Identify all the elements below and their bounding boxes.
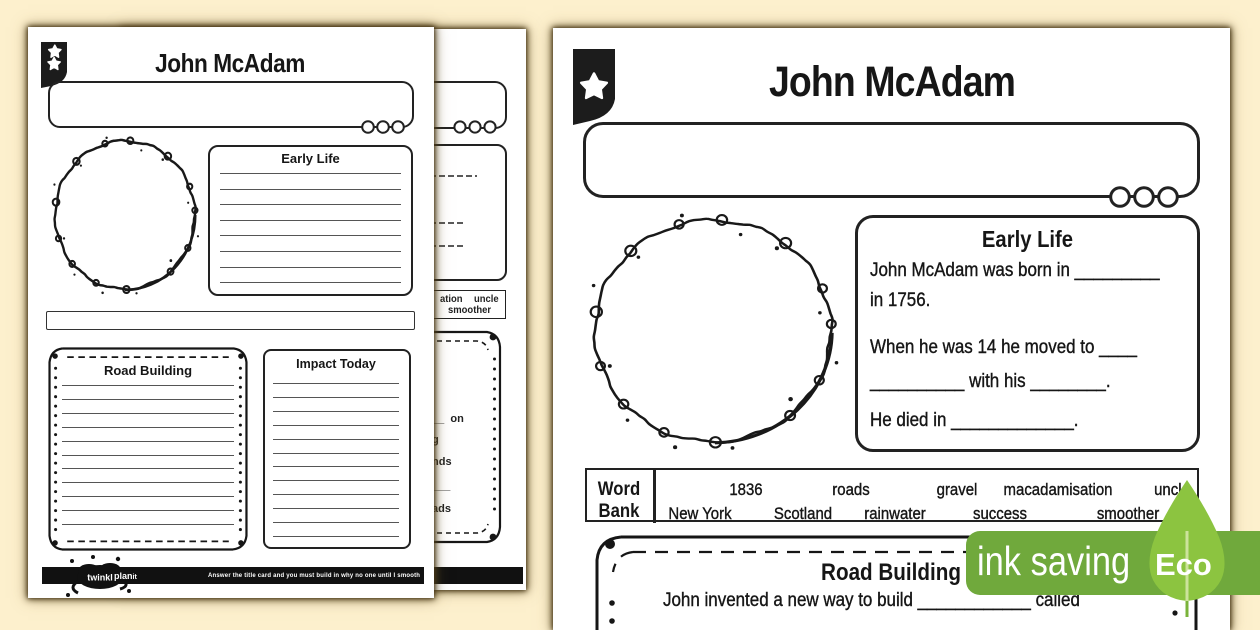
svg-text:twinkl: twinkl [87, 573, 113, 583]
